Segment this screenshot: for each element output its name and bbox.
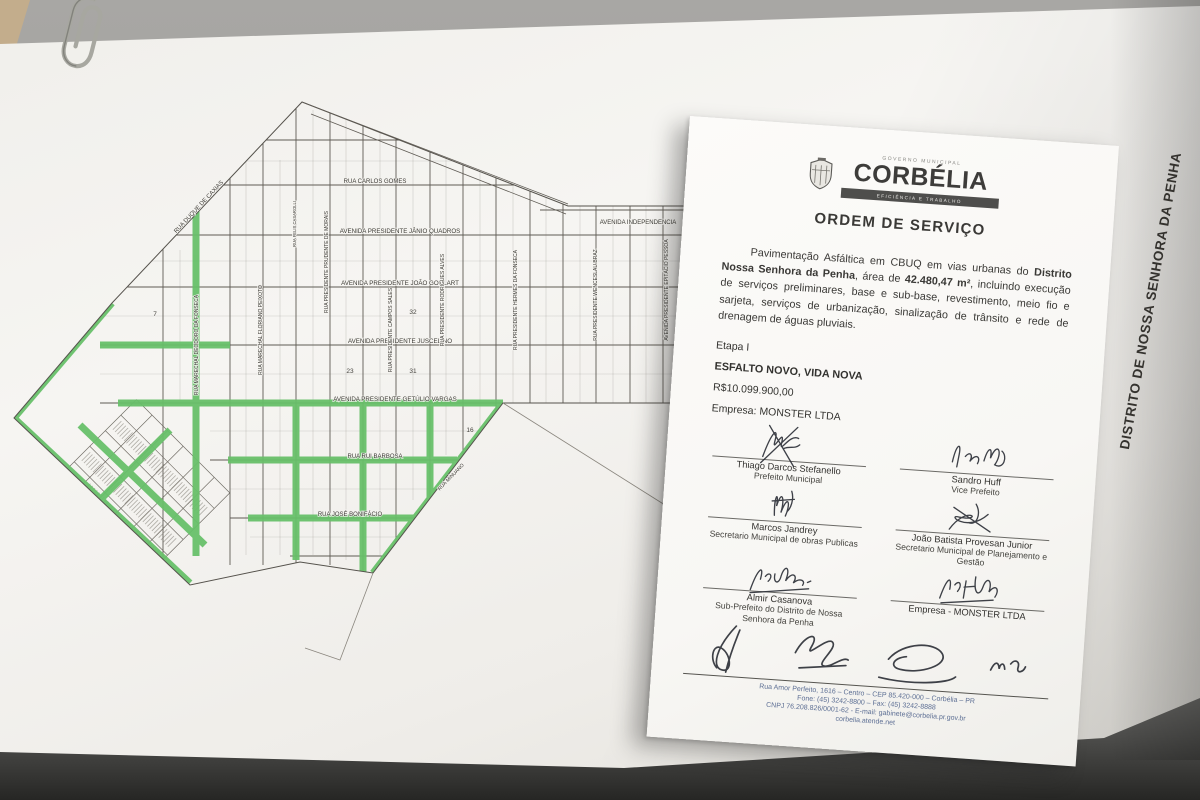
body-text: , área de [855, 270, 906, 285]
signature-block: Marcos Jandrey Secretario Municipal de o… [702, 477, 869, 559]
street-label: AVENIDA PRESIDENTE GETÚLIO VARGAS [333, 396, 457, 403]
city-map: RUA DUQUE DE CAXIAS RUA CARLOS GOMES AVE… [0, 0, 740, 700]
street-label: AVENIDA INDEPENDENCIA [600, 220, 677, 226]
street-label: RUA FELIX CASAROLLI [292, 201, 297, 247]
document-header: GOVERNO MUNICIPAL CORBÉLIA EFICIÊNCIA E … [727, 145, 1079, 214]
signature-block: Thiago Darcos Stefanello Prefeito Munici… [707, 416, 873, 488]
street-label: RUA MARECHAL DEODORO DA FONSECA [194, 294, 200, 395]
signature-block: Empresa - MONSTER LTDA [884, 561, 1051, 643]
body-text: , incluindo execução de serviços prelimi… [718, 277, 1071, 331]
street-label: RUA PRESIDENTE PRUDENTE DE MORAIS [324, 210, 330, 313]
wordmark: GOVERNO MUNICIPAL CORBÉLIA EFICIÊNCIA E … [840, 153, 1001, 209]
block-number: 7 [153, 311, 157, 318]
service-order-document: GOVERNO MUNICIPAL CORBÉLIA EFICIÊNCIA E … [647, 116, 1119, 766]
signature-block: João Batista Provesan Junior Secretario … [889, 490, 1056, 572]
municipal-crest-icon [806, 156, 835, 191]
signature-grid: Thiago Darcos Stefanello Prefeito Munici… [697, 416, 1060, 644]
body-paragraph: Pavimentação Asfáltica em CBUQ em vias u… [718, 243, 1073, 348]
signature-block: Almir Casanova Sub-Prefeito do Distrito … [697, 548, 864, 630]
street-label: RUA PRESIDENTE CAMPOS SALES [388, 287, 394, 372]
area-value: 42.480,47 m² [904, 274, 970, 291]
street-label: RUA RUI BARBOSA [347, 454, 402, 460]
block-number: 31 [409, 368, 417, 375]
photo-of-documents: RUA DUQUE DE CAXIAS RUA CARLOS GOMES AVE… [0, 0, 1200, 800]
street-label: RUA PRESIDENTE RODRIGUES ALVES [440, 253, 446, 346]
street-label: RUA MARECHAL FLORIANO PEIXOTO [258, 285, 264, 375]
street-label: AVENIDA PRESIDENTE JÂNIO QUADROS [340, 228, 461, 235]
signature-block: Sandro Huff Vice Prefeito [894, 429, 1060, 501]
block-number: 32 [409, 309, 417, 316]
block-number: 16 [466, 427, 474, 434]
street-label: RUA PRESIDENTE WENCESLAU BRAZ [593, 249, 599, 340]
street-label: RUA CARLOS GOMES [344, 179, 407, 185]
street-label: RUA PRESIDENTE HERMES DA FONSECA [513, 249, 519, 350]
sheet-fold-shade [1110, 0, 1200, 760]
motto-text: EFICIÊNCIA E TRABALHO [877, 193, 962, 204]
block-number: 23 [346, 368, 354, 375]
street-label: AVENIDA PRESIDENTE EPITÁCIO PESSOA [663, 239, 670, 341]
street-label: RUA JOSÉ BONIFÁCIO [318, 511, 383, 518]
street-label: AVENIDA PRESIDENTE JUSCELINO [348, 338, 452, 345]
